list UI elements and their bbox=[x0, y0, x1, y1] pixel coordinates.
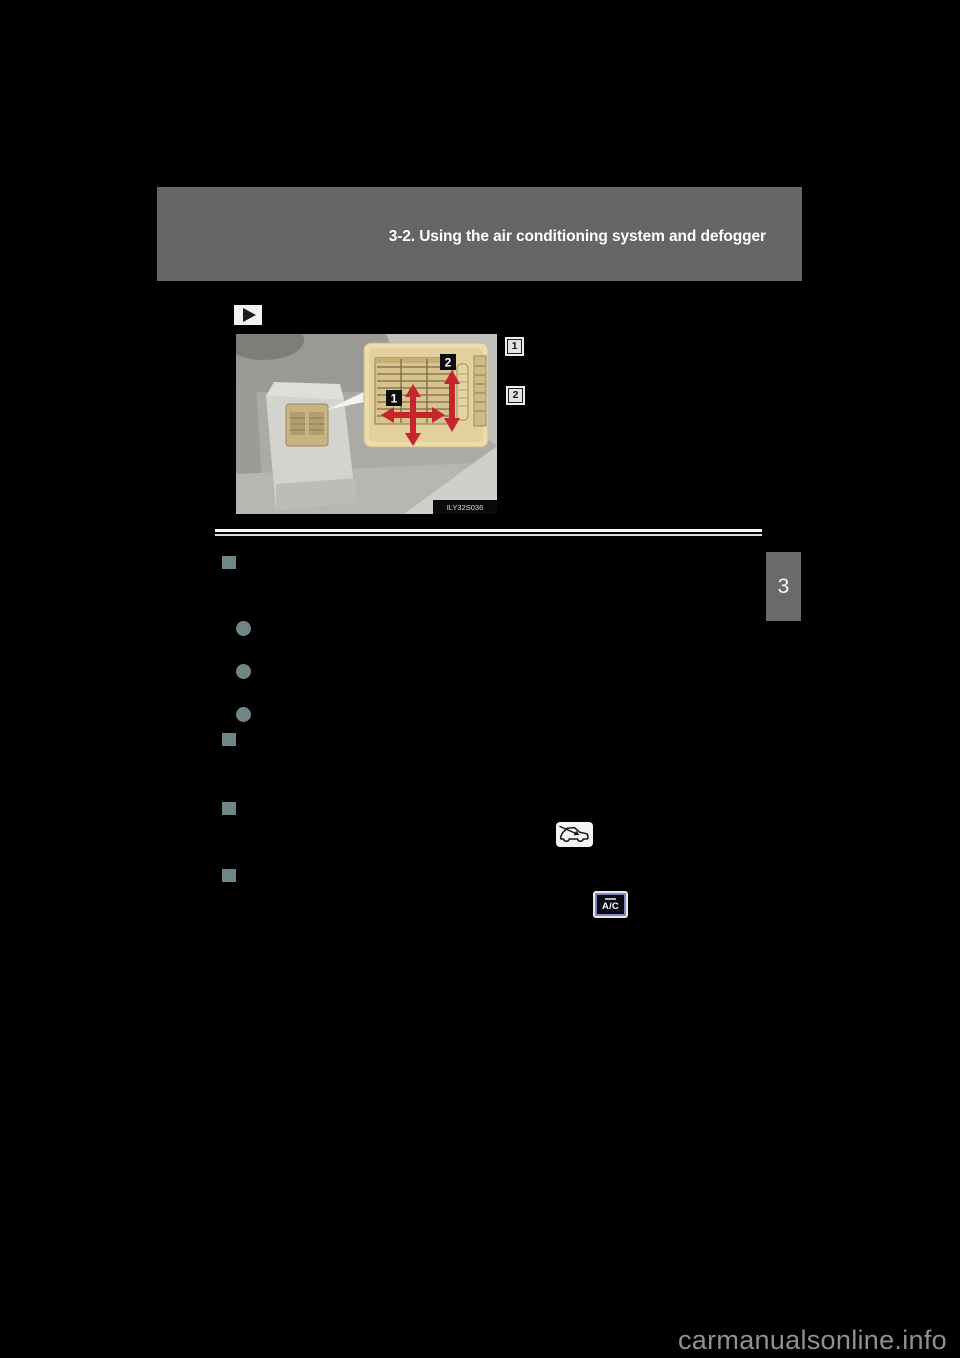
ac-indicator-lamp bbox=[605, 898, 616, 900]
ac-button-label: A/C bbox=[602, 901, 619, 912]
section-separator bbox=[215, 529, 762, 536]
inset-marker-2: 2 bbox=[445, 356, 452, 370]
procedure-marker bbox=[234, 305, 262, 325]
list-marker-2: 2 bbox=[508, 388, 523, 403]
inset-marker-1: 1 bbox=[391, 392, 398, 406]
watermark: carmanualsonline.info bbox=[678, 1325, 947, 1356]
bullet-square-1 bbox=[222, 556, 236, 569]
list-marker-1: 1 bbox=[507, 339, 522, 354]
bullet-square-2 bbox=[222, 733, 236, 746]
bullet-square-4 bbox=[222, 869, 236, 882]
bullet-square-3 bbox=[222, 802, 236, 815]
airflow-dial bbox=[457, 364, 468, 420]
image-code-label: ILY32S036 bbox=[447, 503, 484, 512]
chapter-tab: 3 bbox=[766, 552, 801, 621]
figure-rear-vent-photo: 1 2 ILY32S036 bbox=[236, 334, 497, 514]
ac-button-icon: A/C bbox=[593, 891, 628, 918]
outside-air-intake-icon bbox=[556, 822, 593, 847]
bullet-circle-3 bbox=[236, 707, 251, 722]
rear-vent-illustration: 1 2 ILY32S036 bbox=[236, 334, 497, 514]
bullet-circle-2 bbox=[236, 664, 251, 679]
header-banner: 3-2. Using the air conditioning system a… bbox=[157, 187, 802, 281]
bullet-circle-1 bbox=[236, 621, 251, 636]
page-title: 3-2. Using the air conditioning system a… bbox=[389, 228, 766, 246]
play-arrow-icon bbox=[243, 308, 256, 322]
